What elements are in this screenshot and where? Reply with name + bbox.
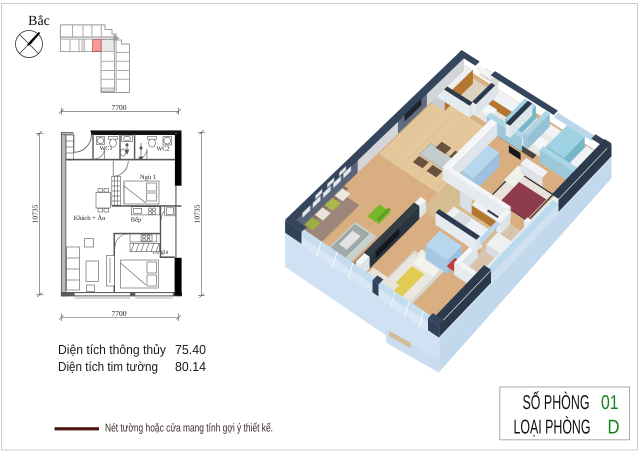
svg-text:D: D (608, 417, 620, 439)
svg-text:Khách + Ăn: Khách + Ăn (74, 214, 107, 222)
svg-text:WC1: WC1 (99, 145, 112, 152)
svg-text:Nét tường hoặc cửa mang tính g: Nét tường hoặc cửa mang tính gợi ý thiết… (105, 423, 273, 435)
svg-text:Ngủ 1: Ngủ 1 (140, 174, 156, 181)
svg-text:LOẠI PHÒNG: LOẠI PHÒNG (514, 416, 591, 439)
svg-text:7700: 7700 (112, 103, 127, 112)
svg-text:01: 01 (601, 392, 619, 414)
svg-text:Diện tích tim tường: Diện tích tim tường (58, 359, 158, 374)
svg-text:Diện tích thông thủy: Diện tích thông thủy (58, 342, 166, 357)
svg-text:10735: 10735 (193, 204, 202, 223)
svg-text:Bắc: Bắc (28, 14, 50, 29)
svg-text:SỐ PHÒNG: SỐ PHÒNG (523, 391, 590, 414)
svg-text:10735: 10735 (31, 204, 40, 223)
svg-text:75.40: 75.40 (175, 342, 206, 357)
svg-text:7700: 7700 (112, 309, 127, 318)
svg-text:80.14: 80.14 (175, 359, 206, 374)
svg-text:WC2: WC2 (156, 146, 169, 153)
svg-text:Bếp: Bếp (131, 217, 141, 224)
